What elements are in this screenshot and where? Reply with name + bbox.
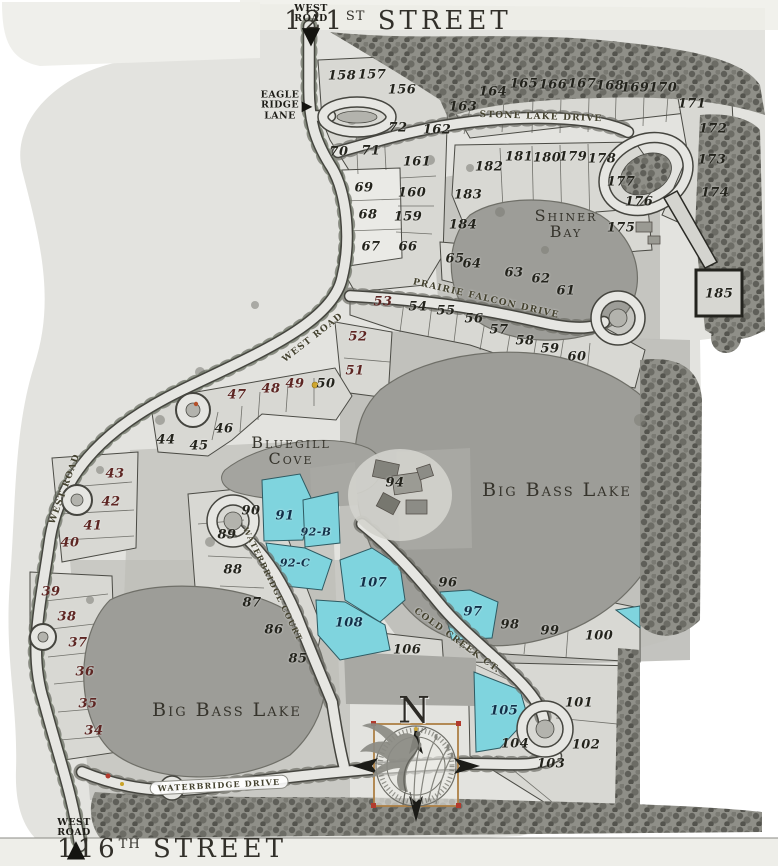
lot-96[interactable]: 96 bbox=[439, 576, 458, 591]
lot-182[interactable]: 182 bbox=[475, 160, 503, 175]
lot-94[interactable]: 94 bbox=[386, 476, 405, 491]
lot-50[interactable]: 50 bbox=[317, 377, 336, 392]
lot-90[interactable]: 90 bbox=[242, 504, 261, 519]
lot-184[interactable]: 184 bbox=[449, 218, 477, 233]
lot-166[interactable]: 166 bbox=[539, 78, 567, 93]
lot-38[interactable]: 38 bbox=[58, 610, 77, 625]
lot-85[interactable]: 85 bbox=[289, 652, 308, 667]
lot-54[interactable]: 54 bbox=[409, 300, 428, 315]
lot-55[interactable]: 55 bbox=[437, 304, 456, 319]
lot-60[interactable]: 60 bbox=[568, 350, 587, 365]
lot-45[interactable]: 45 bbox=[190, 439, 209, 454]
lot-65[interactable]: 65 bbox=[446, 252, 465, 267]
lot-47[interactable]: 47 bbox=[228, 388, 247, 403]
lot-165[interactable]: 165 bbox=[510, 77, 538, 92]
lot-98[interactable]: 98 bbox=[501, 618, 520, 633]
plat-map: 121ST STREET 116TH STREET WEST ROAD ▼ EA… bbox=[0, 0, 778, 866]
lot-97[interactable]: 97 bbox=[464, 605, 483, 620]
lot-101[interactable]: 101 bbox=[565, 696, 593, 711]
lot-61[interactable]: 61 bbox=[557, 284, 576, 299]
lot-162[interactable]: 162 bbox=[423, 123, 451, 138]
lot-99[interactable]: 99 bbox=[541, 624, 560, 639]
lot-169[interactable]: 169 bbox=[621, 81, 649, 96]
lot-92-B[interactable]: 92-B bbox=[301, 526, 332, 539]
lot-68[interactable]: 68 bbox=[359, 208, 378, 223]
lot-183[interactable]: 183 bbox=[454, 188, 482, 203]
lot-180[interactable]: 180 bbox=[533, 151, 561, 166]
lot-172[interactable]: 172 bbox=[699, 122, 727, 137]
lot-62[interactable]: 62 bbox=[532, 272, 551, 287]
lot-66[interactable]: 66 bbox=[399, 240, 418, 255]
lot-102[interactable]: 102 bbox=[572, 738, 600, 753]
lot-86[interactable]: 86 bbox=[265, 623, 284, 638]
lot-63[interactable]: 63 bbox=[505, 266, 524, 281]
lot-52[interactable]: 52 bbox=[349, 330, 368, 345]
lot-88[interactable]: 88 bbox=[224, 563, 243, 578]
lot-92B-area bbox=[303, 492, 340, 547]
lot-92-C[interactable]: 92-C bbox=[280, 557, 310, 570]
lot-64[interactable]: 64 bbox=[463, 257, 482, 272]
lot-58[interactable]: 58 bbox=[516, 334, 535, 349]
lot-37[interactable]: 37 bbox=[69, 636, 88, 651]
lot-175[interactable]: 175 bbox=[607, 221, 635, 236]
lot-46[interactable]: 46 bbox=[215, 422, 234, 437]
lot-89[interactable]: 89 bbox=[218, 528, 237, 543]
lot-87[interactable]: 87 bbox=[243, 596, 262, 611]
lot-44[interactable]: 44 bbox=[157, 433, 176, 448]
lot-181[interactable]: 181 bbox=[505, 150, 533, 165]
lot-160[interactable]: 160 bbox=[398, 186, 426, 201]
lot-53[interactable]: 53 bbox=[374, 295, 393, 310]
lot-164[interactable]: 164 bbox=[479, 85, 507, 100]
lot-67[interactable]: 67 bbox=[362, 240, 381, 255]
lot-34[interactable]: 34 bbox=[85, 724, 104, 739]
lot-69[interactable]: 69 bbox=[355, 181, 374, 196]
lot-49[interactable]: 49 bbox=[286, 377, 305, 392]
lot-159[interactable]: 159 bbox=[394, 210, 422, 225]
lot-57[interactable]: 57 bbox=[490, 323, 509, 338]
lot-108[interactable]: 108 bbox=[335, 616, 363, 631]
lot-104[interactable]: 104 bbox=[501, 737, 529, 752]
lot-156[interactable]: 156 bbox=[388, 83, 416, 98]
lot-177[interactable]: 177 bbox=[607, 175, 635, 190]
lot-185[interactable]: 185 bbox=[705, 287, 733, 302]
lot-42[interactable]: 42 bbox=[102, 495, 121, 510]
lot-167[interactable]: 167 bbox=[568, 77, 596, 92]
lot-59[interactable]: 59 bbox=[541, 342, 560, 357]
lot-43[interactable]: 43 bbox=[106, 467, 125, 482]
lot-70[interactable]: 70 bbox=[330, 145, 349, 160]
lot-51[interactable]: 51 bbox=[346, 364, 365, 379]
lot-100[interactable]: 100 bbox=[585, 629, 613, 644]
lot-56[interactable]: 56 bbox=[465, 312, 484, 327]
lot-107[interactable]: 107 bbox=[359, 576, 387, 591]
waterbridge-drive-pond bbox=[160, 776, 184, 800]
lot-171[interactable]: 171 bbox=[678, 97, 706, 112]
lot-105[interactable]: 105 bbox=[490, 704, 518, 719]
clubhouse-lot-94 bbox=[348, 449, 452, 541]
lot-41[interactable]: 41 bbox=[84, 519, 103, 534]
lot-163[interactable]: 163 bbox=[449, 100, 477, 115]
lot-174[interactable]: 174 bbox=[701, 186, 729, 201]
lot-157[interactable]: 157 bbox=[358, 68, 386, 83]
lot-36[interactable]: 36 bbox=[76, 665, 95, 680]
lot-72[interactable]: 72 bbox=[389, 121, 408, 136]
lot-91[interactable]: 91 bbox=[276, 509, 295, 524]
lot-103[interactable]: 103 bbox=[537, 757, 565, 772]
lot-173[interactable]: 173 bbox=[698, 153, 726, 168]
lot-170[interactable]: 170 bbox=[649, 81, 677, 96]
lot-176[interactable]: 176 bbox=[625, 195, 653, 210]
lot-48[interactable]: 48 bbox=[262, 382, 281, 397]
lot-178[interactable]: 178 bbox=[588, 152, 616, 167]
lot-40[interactable]: 40 bbox=[61, 536, 80, 551]
lot-106[interactable]: 106 bbox=[393, 643, 421, 658]
lot-158[interactable]: 158 bbox=[328, 69, 356, 84]
lot-161[interactable]: 161 bbox=[403, 155, 431, 170]
lot-71[interactable]: 71 bbox=[362, 144, 381, 159]
lot-35[interactable]: 35 bbox=[79, 697, 98, 712]
lot-179[interactable]: 179 bbox=[559, 150, 587, 165]
lot-39[interactable]: 39 bbox=[42, 585, 61, 600]
